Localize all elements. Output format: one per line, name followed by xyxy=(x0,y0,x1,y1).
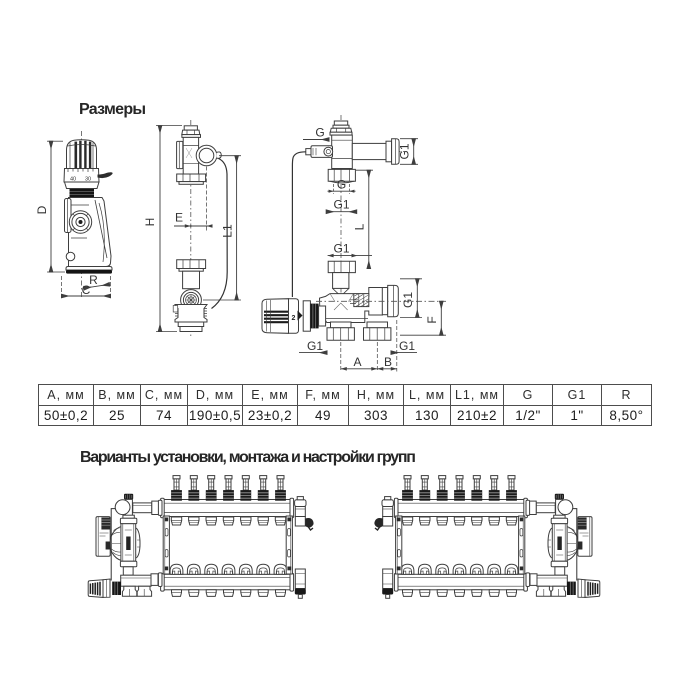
svg-text:F: F xyxy=(425,316,439,323)
svg-text:L: L xyxy=(353,223,367,230)
svg-text:H: H xyxy=(143,218,157,227)
svg-text:G1: G1 xyxy=(333,198,349,212)
svg-text:G: G xyxy=(337,178,346,192)
svg-text:G1: G1 xyxy=(401,292,415,308)
svg-text:B: B xyxy=(384,355,392,369)
svg-text:E: E xyxy=(175,211,183,225)
svg-text:G1: G1 xyxy=(307,339,323,353)
svg-text:D: D xyxy=(35,205,49,214)
svg-text:2: 2 xyxy=(292,315,296,322)
svg-text:R: R xyxy=(89,273,98,287)
svg-text:C: C xyxy=(82,283,91,297)
svg-text:G1: G1 xyxy=(399,339,415,353)
svg-text:G1: G1 xyxy=(398,143,412,159)
svg-text:G: G xyxy=(315,126,324,140)
svg-text:A: A xyxy=(353,355,361,369)
svg-text:G1: G1 xyxy=(333,242,349,256)
